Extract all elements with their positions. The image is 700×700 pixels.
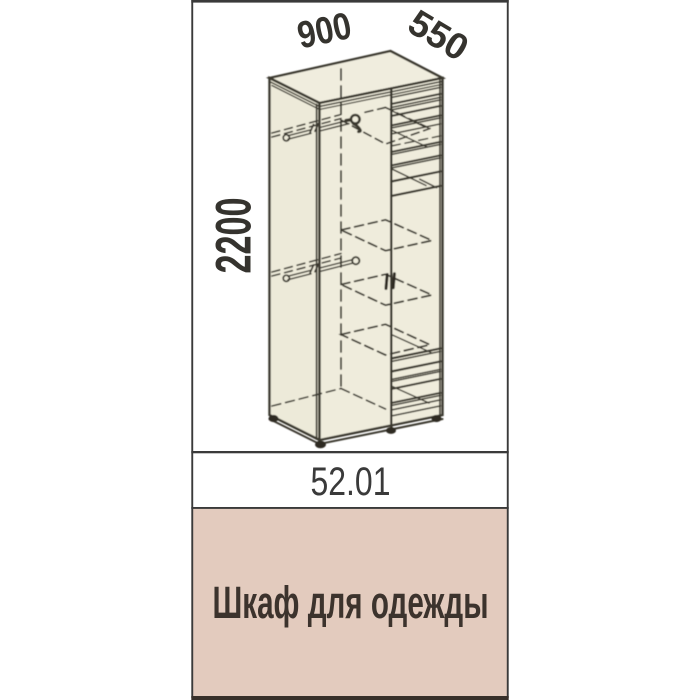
svg-text:2200: 2200 [206,198,262,274]
svg-text:Шкаф для одежды: Шкаф для одежды [213,577,489,628]
svg-text:52.01: 52.01 [311,460,391,504]
